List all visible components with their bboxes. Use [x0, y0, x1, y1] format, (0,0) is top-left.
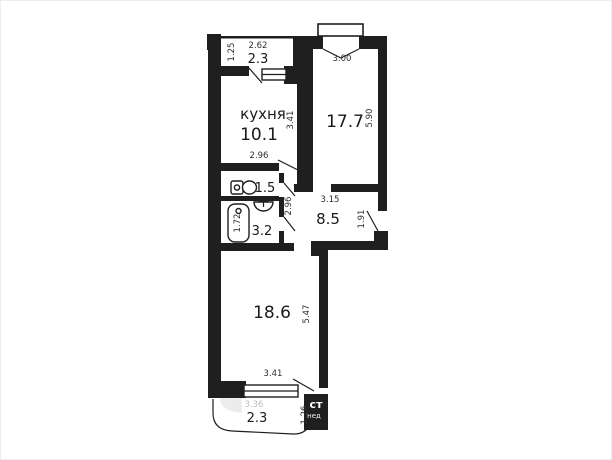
room-label-balcony-top: 2.3 — [248, 52, 269, 67]
dim-corridor-height: 2.96 — [284, 197, 294, 216]
wall — [378, 36, 387, 186]
wc-door-swing — [284, 183, 295, 196]
room-label-living: 17.7 — [326, 112, 364, 132]
dim-bedroom-width: 3.41 — [264, 369, 283, 379]
dim-balcony-bottom-height: 1.26 — [300, 406, 310, 425]
wall — [221, 243, 294, 251]
balcony-door-swing — [249, 68, 262, 83]
dim-balcony-bottom-width: 3.36 — [245, 400, 264, 410]
balcony-corner-shade — [220, 398, 242, 413]
floor-plan-drawing: ст нед 2.3 кухня 10.1 17.7 1.5 3.2 8.5 1… — [1, 1, 612, 460]
wall — [279, 231, 284, 243]
room-label-hall: 8.5 — [316, 210, 340, 228]
bay-window-outline — [318, 24, 363, 36]
wall — [221, 196, 279, 201]
room-label-bath: 3.2 — [252, 224, 273, 239]
kitchen-door-swing — [278, 160, 298, 170]
entrance-door-swing — [367, 211, 378, 231]
room-label-wc: 1.5 — [255, 181, 276, 196]
dim-living-height: 5.90 — [365, 109, 375, 128]
room-label-bedroom: 18.6 — [253, 303, 291, 323]
wall — [221, 163, 279, 171]
wall — [208, 35, 221, 398]
watermark-text-big: ст — [310, 398, 324, 411]
dim-bath-height: 1.72 — [233, 214, 243, 233]
wall — [378, 186, 387, 211]
dim-bedroom-height: 5.47 — [302, 305, 312, 324]
floor-plan-page: ст нед 2.3 кухня 10.1 17.7 1.5 3.2 8.5 1… — [0, 0, 612, 460]
wall — [207, 36, 303, 39]
dim-balcony-top-height: 1.25 — [227, 43, 237, 62]
wall — [279, 173, 284, 183]
dim-kitchen-height: 3.41 — [286, 111, 296, 130]
toilet-icon — [231, 181, 257, 194]
dim-balcony-top-width: 2.62 — [249, 41, 268, 51]
wall — [297, 36, 313, 184]
dim-living-width: 3.00 — [333, 54, 352, 64]
bottom-balcony: ст нед — [213, 394, 328, 434]
wall — [294, 184, 313, 192]
dim-kitchen-width: 2.96 — [250, 151, 269, 161]
room-label-kitchen: 10.1 — [240, 125, 278, 145]
room-label-balcony-bottom: 2.3 — [247, 411, 268, 426]
room-name-kitchen: кухня — [240, 105, 286, 123]
bath-door-swing — [284, 217, 295, 231]
wall — [313, 36, 323, 49]
wall — [331, 184, 378, 192]
wall — [208, 381, 246, 398]
dim-entry-height: 1.91 — [357, 210, 367, 229]
wall — [221, 66, 249, 76]
dim-hall-width: 3.15 — [321, 195, 340, 205]
wall — [319, 249, 328, 388]
wall — [326, 241, 388, 250]
